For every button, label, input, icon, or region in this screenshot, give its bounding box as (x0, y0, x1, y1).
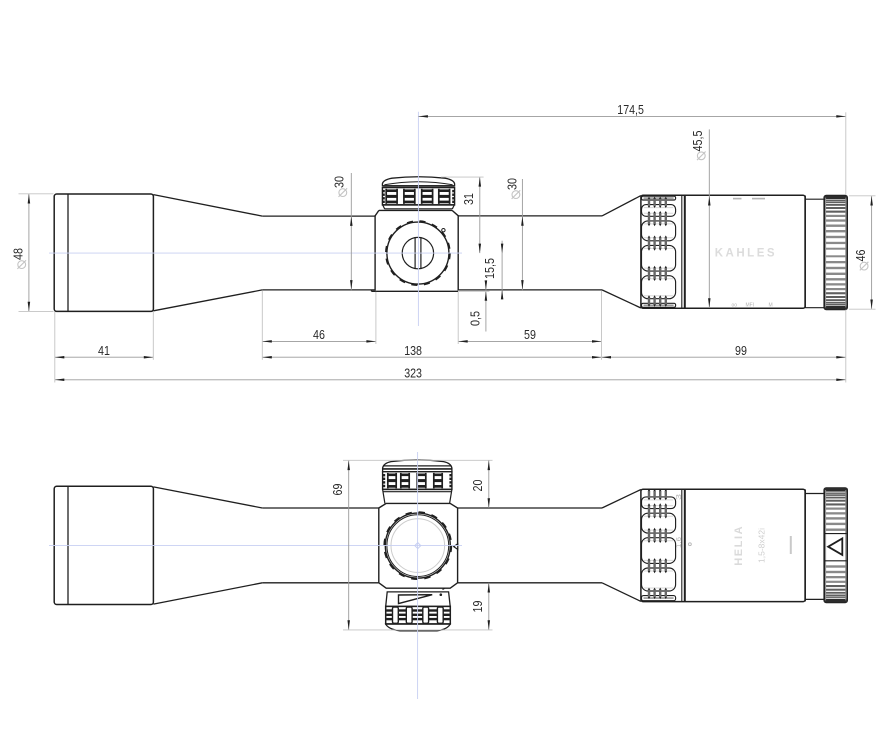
svg-text:46: 46 (853, 250, 868, 262)
svg-text:MFI: MFI (746, 302, 755, 308)
svg-text:1,5-8x42i: 1,5-8x42i (757, 528, 767, 563)
svg-text:oo: oo (732, 302, 738, 308)
svg-text:M: M (769, 302, 773, 308)
svg-text:138: 138 (404, 343, 422, 358)
svg-text:48: 48 (10, 248, 25, 260)
svg-text:323: 323 (404, 365, 422, 380)
svg-text:30: 30 (332, 176, 347, 188)
svg-text:0,5: 0,5 (467, 311, 482, 326)
svg-text:69: 69 (330, 484, 345, 496)
svg-text:45,5: 45,5 (690, 131, 705, 152)
svg-text:31: 31 (461, 193, 476, 205)
svg-text:HELIA: HELIA (733, 525, 745, 566)
svg-text:46: 46 (313, 327, 325, 342)
svg-text:KAHLES: KAHLES (715, 248, 777, 260)
svg-text:99: 99 (735, 343, 747, 358)
svg-text:19: 19 (470, 601, 485, 613)
svg-text:59: 59 (524, 327, 536, 342)
svg-text:15,5: 15,5 (482, 258, 497, 279)
svg-text:30: 30 (505, 178, 520, 190)
svg-text:41: 41 (98, 343, 110, 358)
svg-text:20: 20 (470, 480, 485, 492)
svg-text:174,5: 174,5 (617, 102, 644, 117)
